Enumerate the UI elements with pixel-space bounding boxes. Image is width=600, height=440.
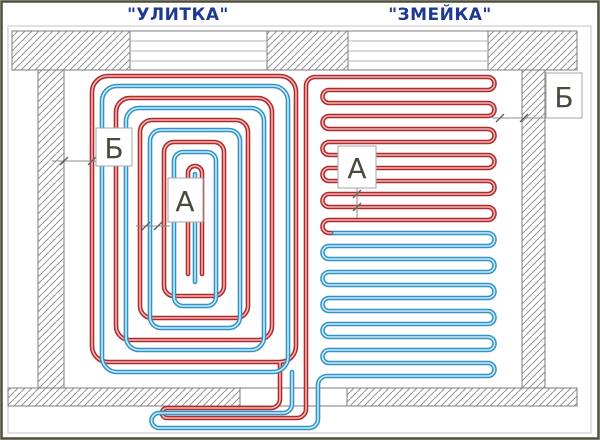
pipes [92,76,495,428]
title-snake-scheme: "ЗМЕЙКА" [388,3,492,25]
label-spiral-edge-gap: Б [104,132,123,165]
label-serpentine-pipe-step: А [347,152,366,185]
top-wall-middle-segment [267,31,348,70]
title-spiral-scheme: "УЛИТКА" [127,5,229,25]
bottom-wall-right-segment [347,388,577,406]
label-boxes: Б А А Б [96,73,582,222]
label-serpentine-edge-gap: Б [554,81,573,114]
diagram-canvas: "УЛИТКА" "ЗМЕЙКА" [0,0,600,440]
inner-frame [8,26,591,433]
label-spiral-pipe-step: А [175,185,194,218]
left-wall [38,70,64,388]
floor-heating-layout-diagram: "УЛИТКА" "ЗМЕЙКА" [0,0,600,440]
top-wall-right-segment [488,31,577,70]
top-wall-left-segment [12,31,130,70]
window-left [130,41,267,61]
window-right [348,41,488,61]
bottom-wall-left-segment [8,388,240,406]
